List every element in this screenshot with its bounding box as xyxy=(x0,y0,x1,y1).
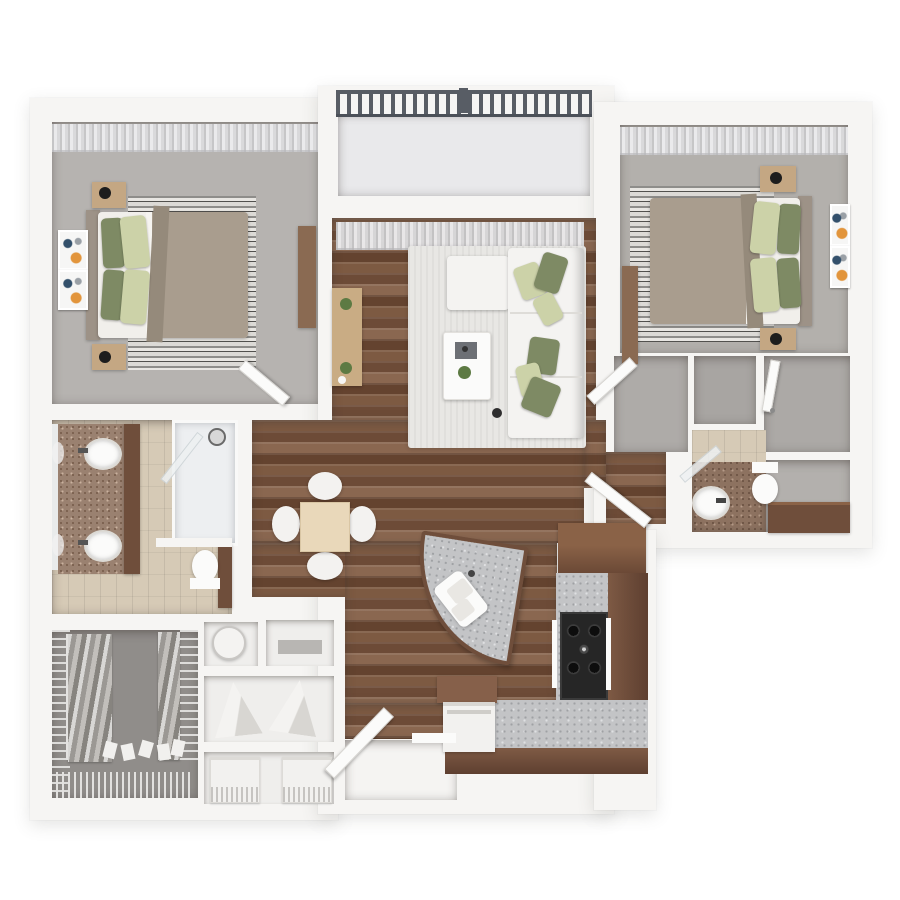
bedroom2-curtains xyxy=(620,127,848,155)
linen-closet-floor xyxy=(694,356,756,424)
oven-handle xyxy=(552,620,557,688)
bathroom2-toilet xyxy=(752,474,778,504)
bedroom2-pillow-dark xyxy=(777,203,802,254)
bathroom1-mirror-reflection xyxy=(52,442,64,464)
gas-cooktop xyxy=(560,612,608,700)
dishwasher-handle xyxy=(447,710,491,714)
balcony-railing-post xyxy=(459,88,468,113)
bedroom2-lamp xyxy=(770,333,782,345)
kitchen-counter-end xyxy=(437,676,497,703)
coffee-table-plant xyxy=(458,366,471,379)
bathroom2-vanity xyxy=(768,502,850,533)
bathroom1-sink xyxy=(84,438,122,470)
bathroom1-sink xyxy=(84,530,122,562)
closet-door-knob xyxy=(770,408,775,413)
bedroom2-pillow-light xyxy=(749,201,780,255)
bedroom1-wall-art xyxy=(58,230,88,270)
bedroom2-wall-art xyxy=(830,246,850,288)
closet-hanging-rod xyxy=(66,634,68,760)
bathroom1-faucet xyxy=(78,540,88,545)
rug-plant-pot xyxy=(492,408,502,418)
bathroom1-shower xyxy=(172,420,238,546)
bathroom1-divider-panel xyxy=(218,544,232,608)
kitchen-counter-bottom xyxy=(494,700,648,748)
console-vase xyxy=(338,376,346,384)
bedroom2-pillow-light xyxy=(750,257,781,313)
bathroom1-toilet-tank xyxy=(190,578,220,589)
shelf-slab xyxy=(278,640,322,654)
bathroom2-vessel-sink xyxy=(692,486,730,520)
bathroom2-toilet-tank xyxy=(752,462,778,473)
bedroom1-lamp xyxy=(99,351,111,363)
bathroom1-partition-wall xyxy=(156,538,232,547)
dining-chair xyxy=(348,506,376,542)
island-faucet xyxy=(468,570,475,577)
bedroom2-lamp xyxy=(770,172,782,184)
dryer-front xyxy=(282,757,332,803)
floor-plan-canvas xyxy=(0,0,900,900)
towel-bar xyxy=(606,618,611,690)
tray-bottle xyxy=(462,346,468,352)
dining-chair xyxy=(308,472,342,500)
bedroom2-wall-art xyxy=(830,204,850,246)
water-heater xyxy=(212,626,246,660)
dining-chair xyxy=(272,506,300,542)
bedroom1-curtains xyxy=(52,124,318,152)
refrigerator xyxy=(558,523,646,573)
bedroom2-pillow-dark xyxy=(776,257,801,308)
bedroom2-blanket xyxy=(650,198,746,324)
console-plant xyxy=(340,298,352,310)
bedroom1-pillow-light xyxy=(120,269,151,325)
bedroom1-lamp xyxy=(99,187,111,199)
closet-shoe-rack xyxy=(56,772,194,798)
bathroom2-faucet xyxy=(716,498,726,503)
dining-chair xyxy=(307,552,343,580)
bathroom1-linen-cabinet xyxy=(124,424,140,574)
entry-threshold xyxy=(412,733,456,743)
console-plant xyxy=(340,362,352,374)
dining-table xyxy=(300,502,350,552)
bathroom1-mirror-reflection xyxy=(52,534,64,556)
closet-shoe xyxy=(157,743,172,761)
bedroom1-pillow-light xyxy=(119,215,150,269)
chaise-ottoman xyxy=(447,256,509,310)
bathroom1-showerhead xyxy=(208,428,226,446)
bedroom1-wall-art xyxy=(58,270,88,310)
bathroom1-faucet xyxy=(78,448,88,453)
washer-front xyxy=(210,757,260,803)
balcony-floor xyxy=(338,112,590,196)
bedroom1-media-console xyxy=(298,226,316,328)
bedroom2-dresser xyxy=(622,266,638,364)
